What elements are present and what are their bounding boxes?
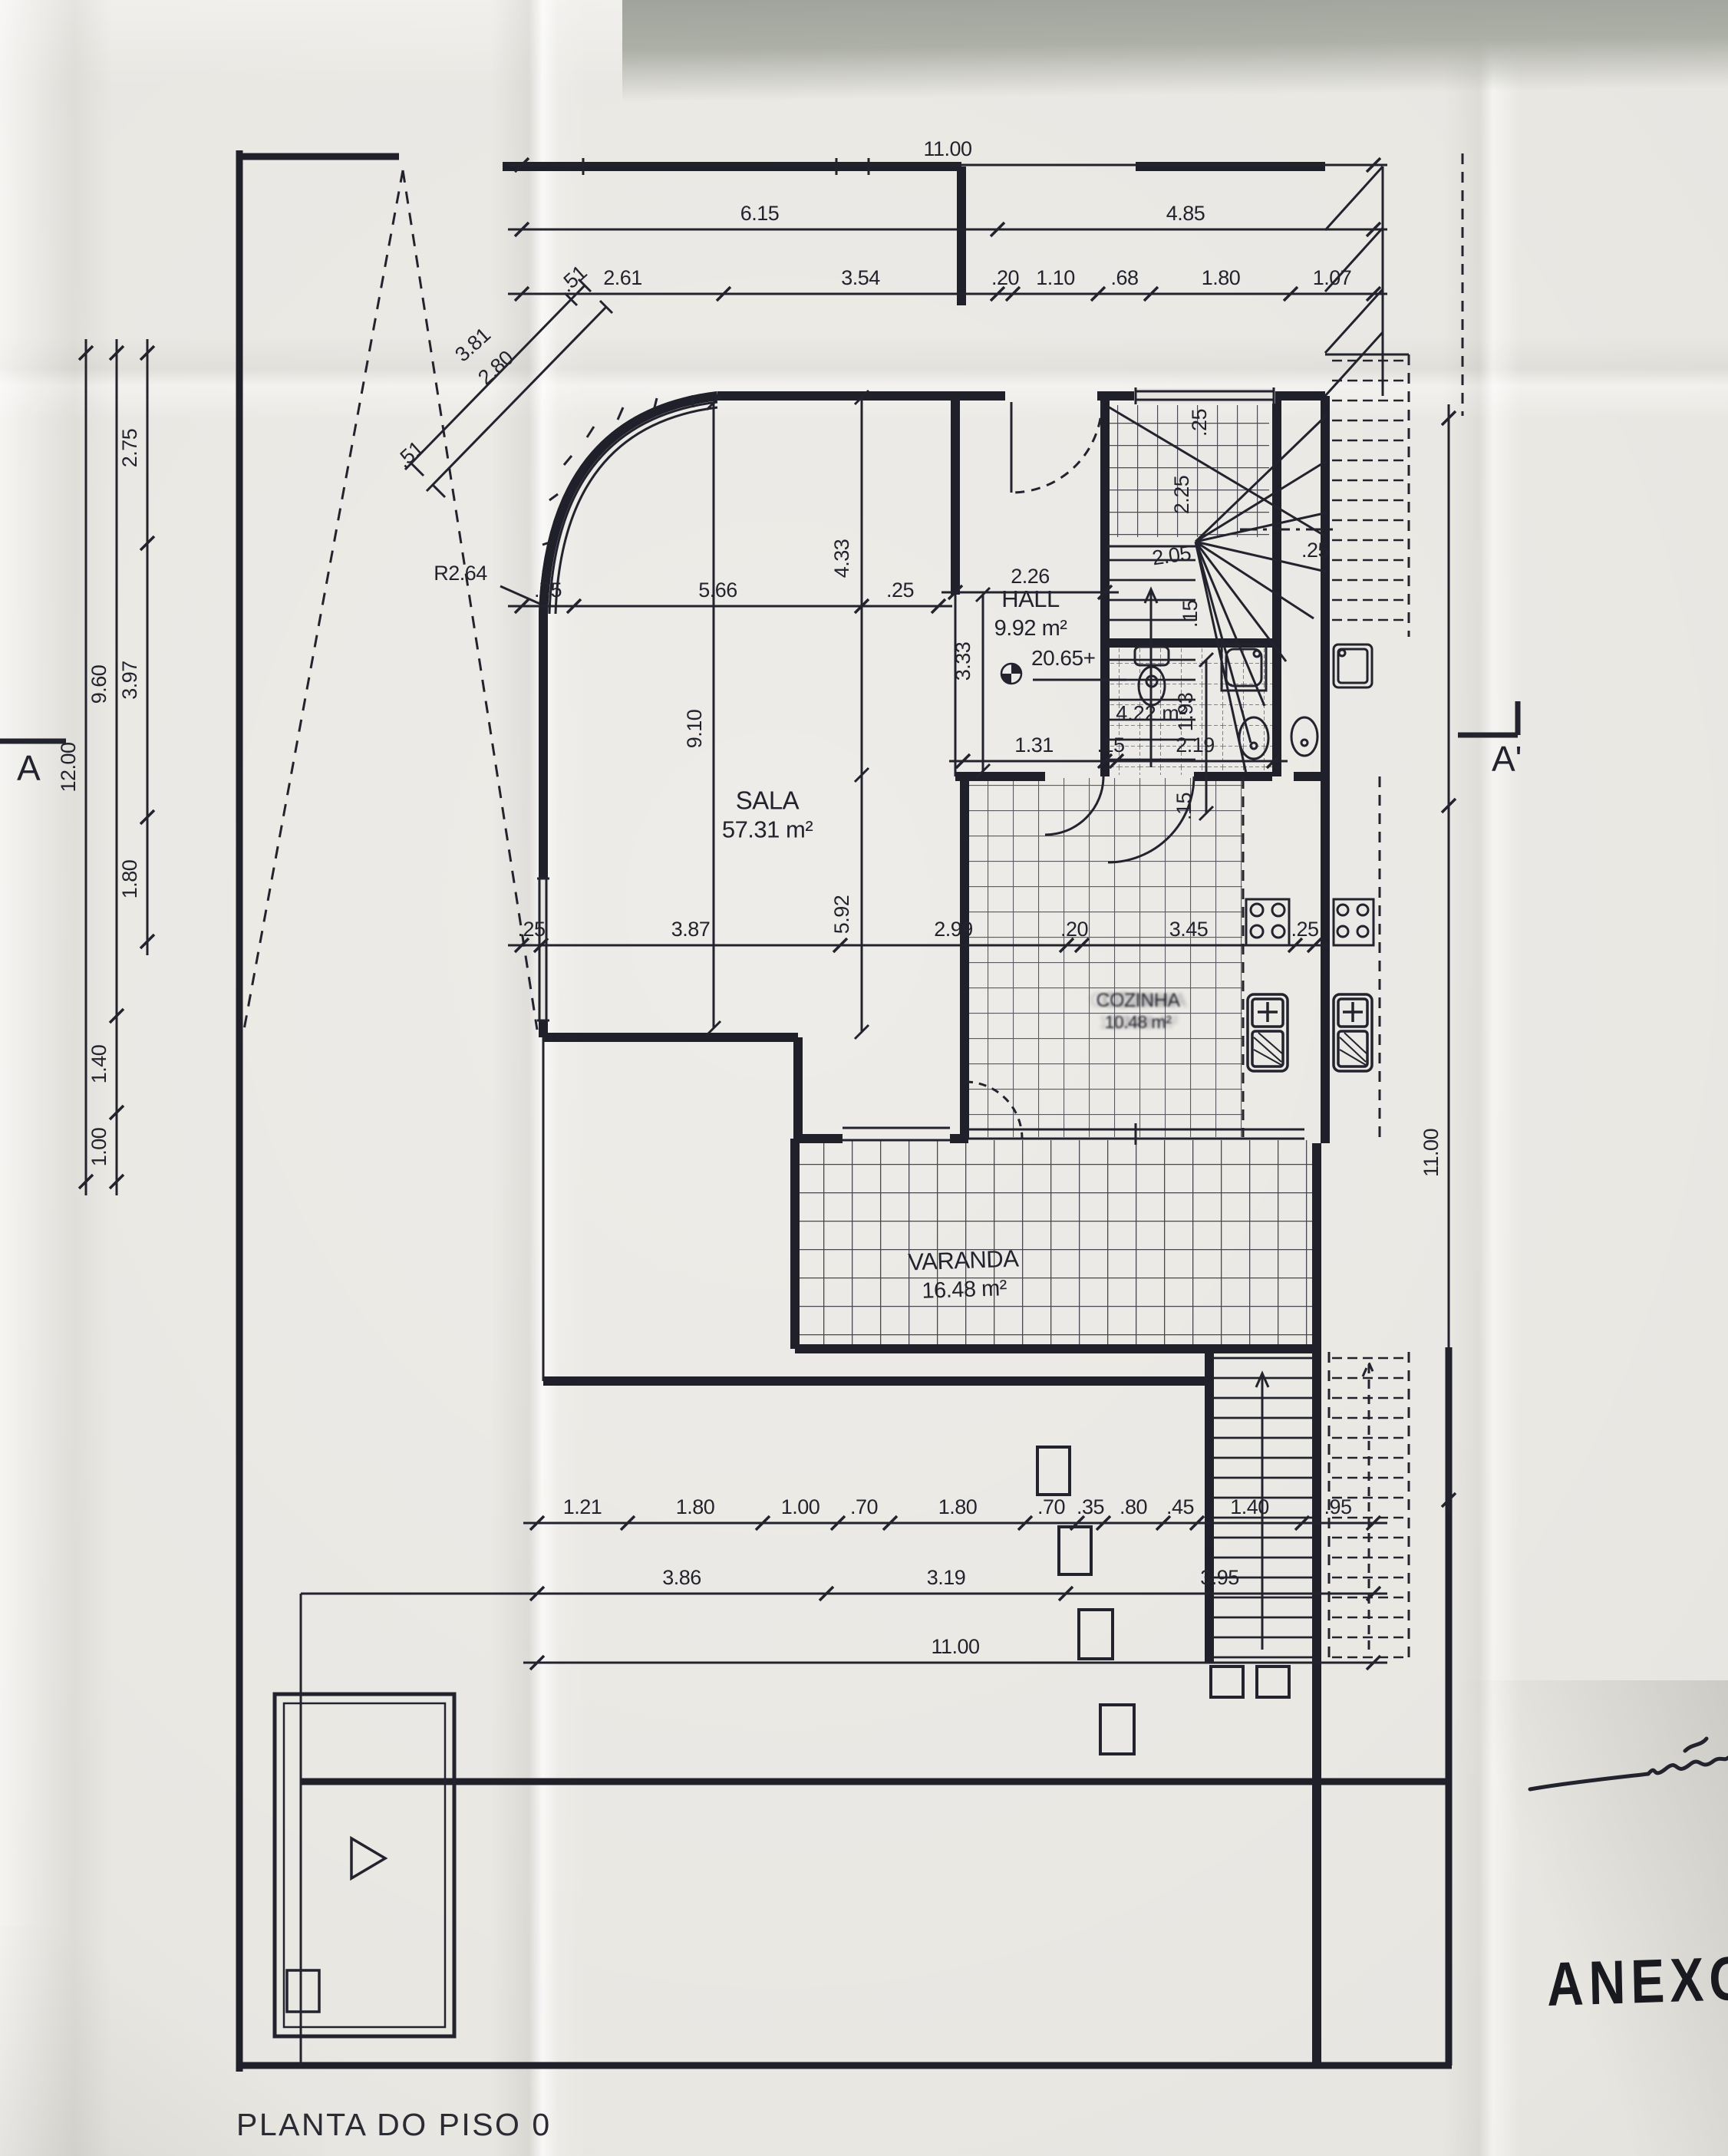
dim-label: 9.10 [683,710,706,749]
dim-label: 3.33 [951,642,974,681]
cooktop-outdoor [1334,899,1373,945]
dim-label: 1.80 [1202,266,1241,289]
laundry-tank [1334,644,1372,687]
handwritten-annotation: ANEXO [1546,1942,1728,2019]
dim-label: .35 [1077,1495,1104,1518]
dim-label: 5.66 [698,579,737,602]
level-value: 20.65+ [1031,646,1095,671]
room-label-hall: HALL9.92 m² [994,585,1067,643]
dim-label: 4.33 [830,539,853,579]
dim-label: 12.00 [57,742,80,792]
dim-label: .25 [1188,409,1211,437]
dim-label: 1.40 [1230,1495,1269,1518]
dim-label: 2.25 [1170,476,1193,515]
dim-label: R2.64 [434,562,487,585]
room-label-cozinha: COZINHA10.48 m² [1096,990,1180,1033]
dim-label: 3.95 [1200,1566,1239,1589]
dim-label: .95 [1324,1495,1351,1518]
dim-label: 2.75 [118,429,141,468]
dim-label: 1.21 [563,1495,602,1518]
section-cut-markers [0,701,1518,741]
dim-label: 3.19 [927,1566,966,1589]
dim-label: 11.00 [923,137,971,160]
upper-exterior-stair-dashed-treads [1332,358,1409,637]
dim-label: 11.00 [1420,1129,1443,1177]
dim-label: 1.07 [1313,266,1352,289]
dim-label: 1.40 [87,1045,110,1084]
dim-label: .25 [886,579,914,602]
section-marker-a: A [17,747,41,789]
dim-label: 11.00 [931,1635,979,1658]
dim-label: 3.97 [118,661,141,700]
dim-label: 1.00 [87,1128,110,1167]
dim-label: .68 [1110,266,1138,289]
dim-label: 1.80 [118,860,141,899]
dim-label: 6.15 [740,202,780,225]
dim-label: .51 [392,437,428,472]
dim-label: .45 [1166,1495,1194,1518]
kitchen-sink-outdoor [1334,994,1372,1071]
dim-label: .20 [1060,918,1088,941]
handwritten-scribble [1530,1739,1728,1789]
dim-label: .20 [991,266,1019,289]
dim-label: 2.99 [934,918,973,941]
room-label-bathroom-area: 4.22 m² [1116,702,1186,726]
dim-label: .70 [1037,1495,1065,1518]
dim-label: .15 [1179,600,1202,628]
kitchen-tiles [966,778,1242,1137]
dim-label: .51 [556,261,592,296]
photographed-floor-plan: 11.006.154.852.613.54.201.10.681.801.071… [0,0,1728,2156]
dim-label: .80 [1120,1495,1147,1518]
dim-label: 9.60 [87,665,110,704]
level-marker-icon [1001,664,1021,684]
section-marker-a-prime: A' [1492,738,1522,780]
dim-label: .25 [517,918,545,941]
room-label-varanda: VARANDA16.48 m² [908,1244,1021,1307]
dim-label: 5.92 [830,895,853,935]
dim-label: .15 [1172,793,1195,820]
dim-label: 3.87 [671,918,711,941]
dim-label: 2.61 [603,266,642,289]
cooktop-indoor [1246,899,1289,945]
dim-label: 1.10 [1036,266,1075,289]
dim-label: 3.45 [1169,918,1209,941]
dim-label: 1.80 [676,1495,715,1518]
plot-boundary-core [239,150,1452,2072]
direction-triangle-icon [351,1838,385,1878]
dim-label: 1.00 [781,1495,820,1518]
dim-label: 3.54 [841,266,880,289]
utility-basin [1291,717,1317,756]
drawing-title: PLANTA DO PISO 0 [236,2107,552,2143]
dim-label: 4.85 [1166,202,1205,225]
floor-plan-drawing: 11.006.154.852.613.54.201.10.681.801.071… [0,0,1728,2156]
dim-label: 2.19 [1176,734,1215,757]
dim-label: 1.31 [1014,734,1054,757]
dim-label: 3.86 [662,1566,701,1589]
dim-label: .70 [850,1495,878,1518]
dim-label: .25 [1291,918,1318,941]
dim-label: .75 [534,579,562,602]
kitchen-sink-indoor [1248,994,1288,1071]
dim-label: 1.80 [938,1495,978,1518]
dim-label: .25 [1301,539,1329,562]
balcony-tiles [796,1140,1315,1347]
room-label-sala: SALA57.31 m² [722,786,813,844]
dim-label: .15 [1096,734,1124,757]
